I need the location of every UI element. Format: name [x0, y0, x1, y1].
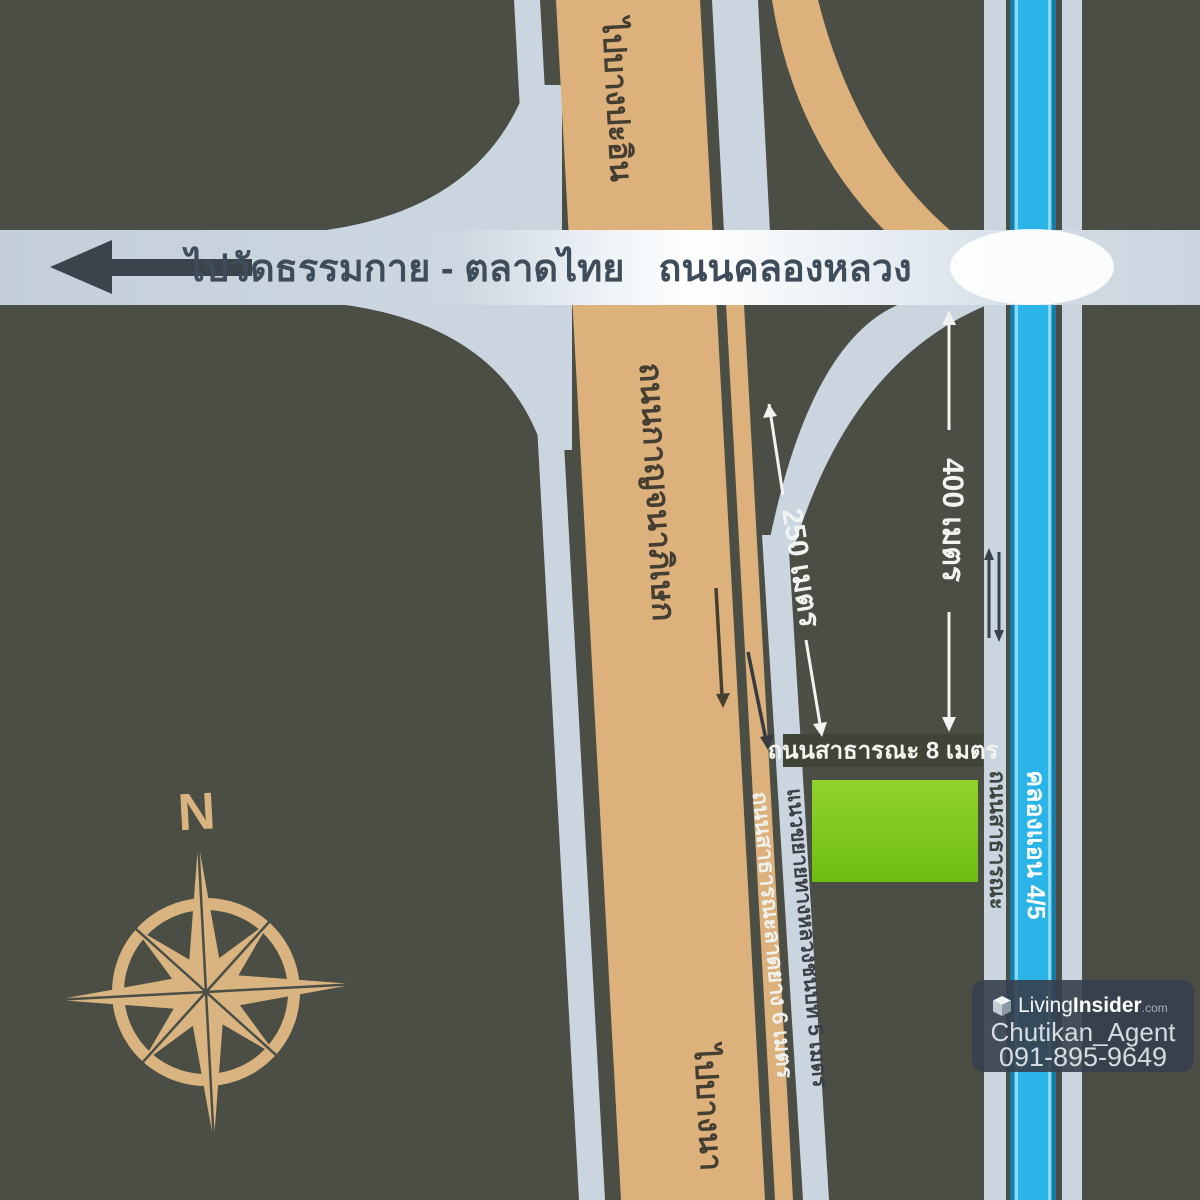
public-road-vertical-label: ถนนสาธารณะ [985, 770, 1010, 909]
north-label: N [176, 782, 217, 842]
highway-canal-glow [950, 229, 1114, 305]
watermark-card: LivingInsider.com Chutikan_Agent 091-895… [972, 980, 1194, 1072]
brand-insider: Insider [1073, 994, 1142, 1017]
location-map: ไปวัดธรรมกาย - ตลาดไทย ถนนคลองหลวง ถนนสา… [0, 0, 1200, 1200]
to-bang-na-label: ไปบางนา [687, 1041, 730, 1172]
brand-living: Living [1018, 994, 1073, 1017]
distance-400m-label: 400 เมตร [936, 458, 969, 582]
highway-name-label: ถนนคลองหลวง [658, 248, 911, 290]
canal-name-label: คลองแอน 4/5 [1021, 770, 1049, 919]
direction-west-label: ไปวัดธรรมกาย - ตลาดไทย [181, 246, 624, 290]
public-road-8m-label: ถนนสาธารณะ 8 เมตร [768, 737, 999, 764]
map-canvas: ไปวัดธรรมกาย - ตลาดไทย ถนนคลองหลวง ถนนสา… [0, 0, 1200, 1200]
plot-highlight [812, 780, 978, 882]
brand-suffix: .com [1142, 1001, 1168, 1015]
agent-phone: 091-895-9649 [999, 1042, 1167, 1072]
